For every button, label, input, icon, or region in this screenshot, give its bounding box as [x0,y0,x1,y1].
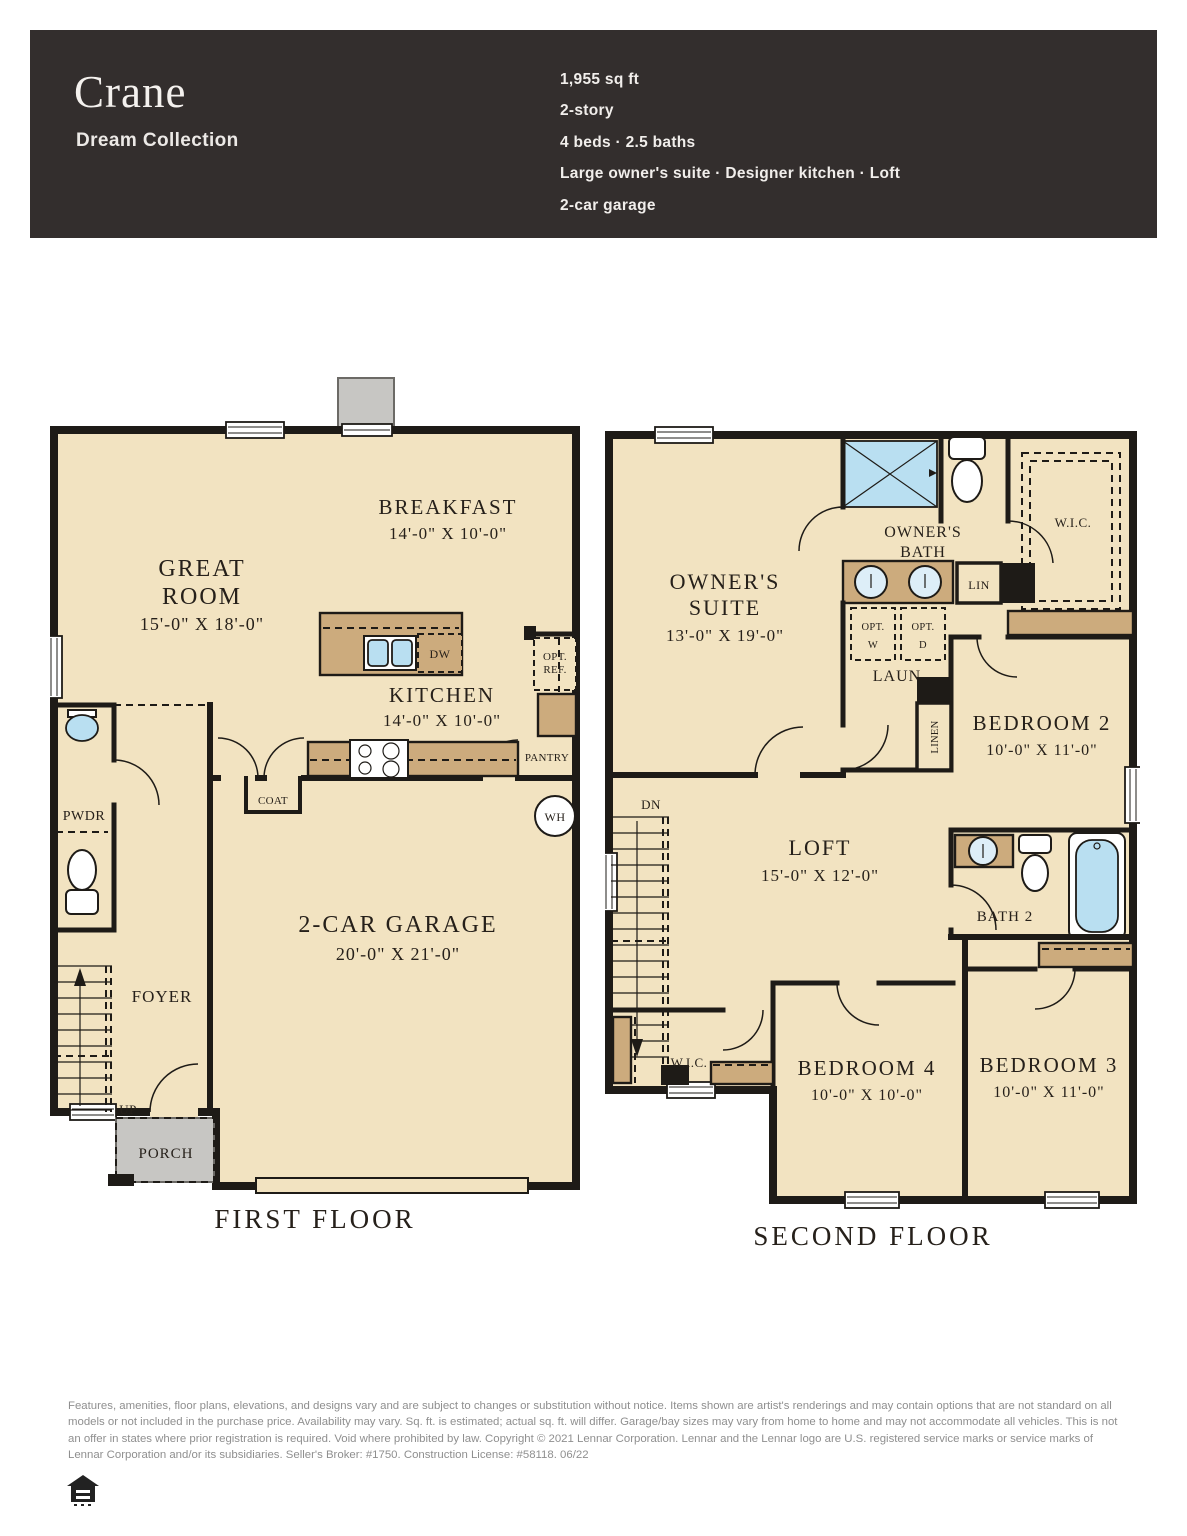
kitchen-island: DW [320,613,462,675]
owners-bath-label: OWNER'S [884,524,961,541]
garage-label: 2-CAR GARAGE [298,912,497,938]
plan-specs: 1,955 sq ft 2-story 4 beds · 2.5 baths L… [560,64,900,221]
shower [843,441,937,507]
spec-garage: 2-car garage [560,190,900,221]
dn-label: DN [641,797,661,812]
loft-label: LOFT [789,835,852,860]
toilet [66,850,98,914]
foyer-label: FOYER [132,987,193,1006]
plan-collection: Dream Collection [76,130,239,152]
second-floor-caption: SECOND FLOOR [753,1221,992,1251]
linen-closet: LIN [957,563,1001,603]
optional-dryer: OPT. D [901,608,945,660]
toilet [949,437,985,502]
water-heater: WH [535,796,575,836]
first-floor-caption: FIRST FLOOR [214,1204,415,1234]
opt-ref-label: OPT. [543,651,567,663]
garage-door [256,1178,528,1193]
spec-sqft: 1,955 sq ft [560,64,900,95]
kitchen-label: KITCHEN [389,683,495,707]
pantry-shelf [538,694,576,736]
wh-label: WH [545,810,566,824]
window [50,636,62,698]
wic2-label: W.I.C. [671,1055,708,1070]
breakfast-label: BREAKFAST [379,495,518,519]
window [655,427,713,443]
bathtub [1069,833,1125,939]
svg-text:OPT.: OPT. [912,622,935,633]
up-label: UP [119,1102,137,1117]
opt-ref-label: REF. [543,664,566,676]
svg-text:W: W [868,640,878,651]
plan-header: Crane Dream Collection 1,955 sq ft 2-sto… [30,30,1157,238]
lin-label: LIN [968,578,990,592]
great-room-label: ROOM [162,584,242,610]
second-floor-plan: OWNER'S BATH LIN W.I.C. OWNER'S SUITE 13… [605,425,1140,1255]
first-floor-outline [54,430,576,1186]
window [70,1104,116,1120]
linen-label: LINEN [930,720,941,753]
bedroom4-label: BEDROOM 4 [798,1056,937,1080]
equal-housing-logo [66,1474,100,1508]
front-door-opening [150,1105,198,1119]
floor-plan-sheet: Crane Dream Collection 1,955 sq ft 2-sto… [0,0,1187,1536]
great-room-label: GREAT [158,556,245,582]
laundry-label: LAUN [873,668,921,685]
breakfast-dims: 14'-0" X 10'-0" [389,524,507,543]
bedroom4-dims: 10'-0" X 10'-0" [811,1087,923,1104]
window [605,853,617,911]
toilet [1019,835,1051,891]
kitchen-counter [308,740,518,778]
coat-label: COAT [258,795,288,807]
window [226,422,284,438]
spec-stories: 2-story [560,95,900,126]
dw-label: DW [430,647,451,661]
legal-disclaimer: Features, amenities, floor plans, elevat… [68,1398,1126,1463]
owners-suite-dims: 13'-0" X 19'-0" [666,626,784,645]
linen-closet-2: LINEN [917,703,951,770]
window [845,1192,899,1208]
under-stair-closet [613,1017,631,1083]
svg-text:D: D [919,640,927,651]
spec-features: Large owner's suite · Designer kitchen ·… [560,158,900,189]
chimney [338,378,394,430]
bedroom3-label: BEDROOM 3 [980,1053,1119,1077]
porch: PORCH [108,1118,214,1186]
optional-washer: OPT. W [851,608,895,660]
bedroom2-dims: 10'-0" X 11'-0" [986,742,1097,759]
loft-dims: 15'-0" X 12'-0" [761,866,879,885]
bath2-label: BATH 2 [977,909,1033,925]
spec-beds-baths: 4 beds · 2.5 baths [560,127,900,158]
first-floor-plan: PWDR COAT [50,370,580,1250]
powder-sink [66,710,98,741]
vanity-sinks [843,561,953,603]
pantry-label: PANTRY [525,752,569,764]
owners-bath-label: BATH [900,544,946,561]
great-room-dims: 15'-0" X 18'-0" [140,614,264,634]
garage-dims: 20'-0" X 21'-0" [336,944,460,964]
plan-title: Crane [74,66,186,118]
porch-label: PORCH [138,1146,193,1162]
window [1125,767,1140,823]
owners-suite-label: OWNER'S [670,569,781,594]
kitchen-dims: 14'-0" X 10'-0" [383,711,501,730]
window [342,424,392,436]
wic-label: W.I.C. [1055,515,1092,530]
bedroom3-dims: 10'-0" X 11'-0" [993,1084,1104,1101]
owners-suite-label: SUITE [689,595,761,620]
bedroom2-label: BEDROOM 2 [973,711,1112,735]
bedroom3-closet-shelf [1039,943,1133,967]
wic-shelf [1008,611,1133,635]
pwdr-label: PWDR [63,809,106,824]
range-stove [350,740,408,778]
window [1045,1192,1099,1208]
bath2-sink [955,835,1013,867]
svg-text:OPT.: OPT. [862,622,885,633]
